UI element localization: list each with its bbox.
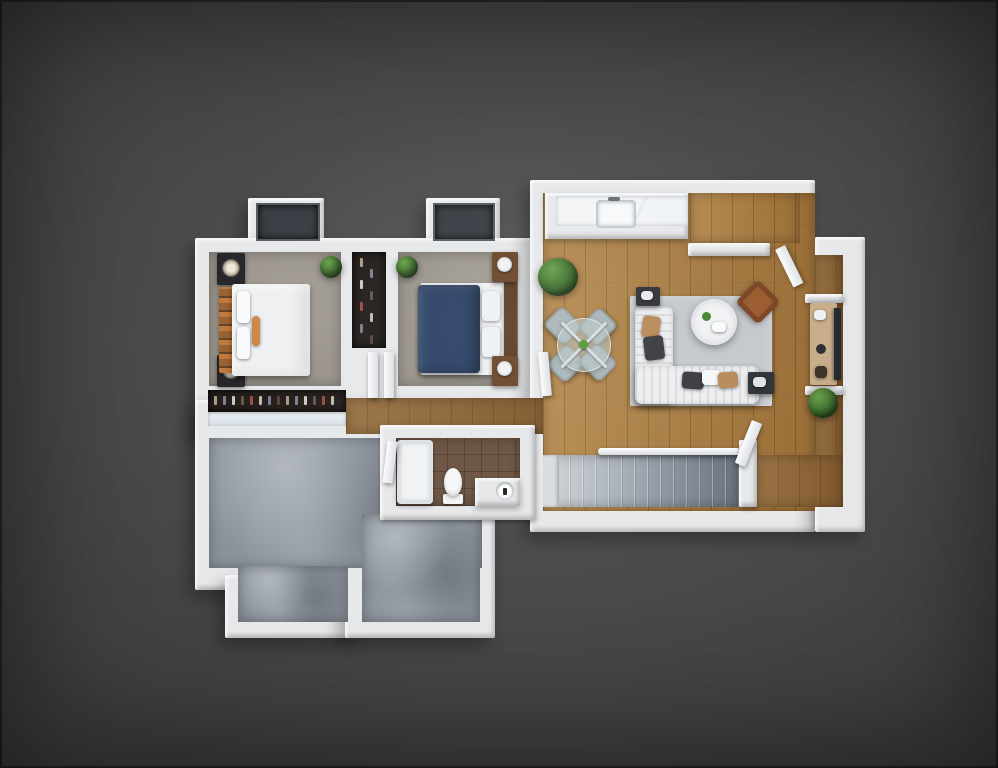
white-bed-pillow-top [237, 291, 250, 323]
hanging-clothes [286, 396, 289, 405]
side-table-bottom-book [753, 377, 766, 387]
console-item-dark [816, 344, 826, 354]
entry-landing-floor [757, 455, 843, 507]
hanging-clothes [370, 269, 373, 278]
unfinished-room-floor-lower [362, 514, 480, 622]
unfinished-room-floor-step [238, 566, 348, 622]
hanging-clothes [331, 396, 334, 405]
floorplan-scene [0, 0, 998, 768]
hanging-clothes [250, 396, 253, 405]
white-bed-runner [252, 316, 260, 346]
wardrobe-closet-shelf [208, 412, 346, 426]
living-room-plant-large [538, 258, 578, 296]
coffee-table-plant [702, 312, 711, 321]
bay-window-2-pane [433, 203, 495, 241]
blue-bed-duvet [418, 285, 480, 373]
hanging-clothes [223, 396, 226, 405]
hanging-clothes [360, 324, 363, 333]
bedroom-1-door-leaf-b [384, 352, 394, 398]
sofa-cushion-tan-2 [717, 371, 738, 389]
entry-alcove-floor [690, 193, 800, 243]
coffee-table-book [712, 322, 726, 332]
hanging-clothes [370, 313, 373, 322]
bathtub [397, 440, 433, 504]
lamp-top-left [222, 259, 240, 277]
alcove-divider-wall [688, 243, 770, 256]
sofa-cushion-dark-1 [643, 335, 666, 361]
dining-centerpiece [579, 340, 588, 349]
closet-between-bedrooms-interior [352, 252, 386, 348]
hanging-clothes [232, 396, 235, 405]
hanging-clothes [360, 258, 363, 267]
hanging-clothes [360, 280, 363, 289]
hanging-clothes [295, 396, 298, 405]
hanging-clothes [370, 291, 373, 300]
bay-window-1-pane [256, 203, 320, 241]
white-bed-pillow-bottom [237, 327, 250, 359]
vanity-faucet [503, 488, 507, 495]
staircase [543, 455, 739, 507]
clock-bottom-right [497, 361, 512, 376]
hanging-clothes [241, 396, 244, 405]
hanging-clothes [214, 396, 217, 405]
hanging-clothes [304, 396, 307, 405]
kitchen-sink [596, 200, 636, 228]
hanging-clothes [277, 396, 280, 405]
wardrobe-closet-interior [208, 390, 346, 412]
stair-railing [598, 448, 740, 455]
tv-recess-plant [808, 388, 838, 418]
side-table-top-book [641, 291, 653, 300]
kitchen-faucet [608, 197, 620, 201]
bedroom-1-plant [320, 256, 342, 278]
toilet-bowl [444, 468, 462, 496]
wall-tv [834, 308, 841, 380]
clock-top-right [497, 257, 512, 272]
hanging-clothes [370, 335, 373, 344]
tv-recess-stub-top [805, 294, 843, 303]
console-item-black [815, 366, 827, 378]
headboard-white-bed [219, 287, 233, 373]
hanging-clothes [268, 396, 271, 405]
hanging-clothes [259, 396, 262, 405]
blue-bed-pillow-bottom [482, 327, 500, 357]
hanging-clothes [322, 396, 325, 405]
stair-landing [543, 455, 559, 507]
console-item-white [814, 310, 826, 320]
blue-bed-pillow-top [482, 291, 500, 321]
bedroom-1-door-leaf-a [368, 352, 378, 398]
hanging-clothes [360, 302, 363, 311]
hanging-clothes [313, 396, 316, 405]
bedroom-2-plant [396, 256, 418, 278]
